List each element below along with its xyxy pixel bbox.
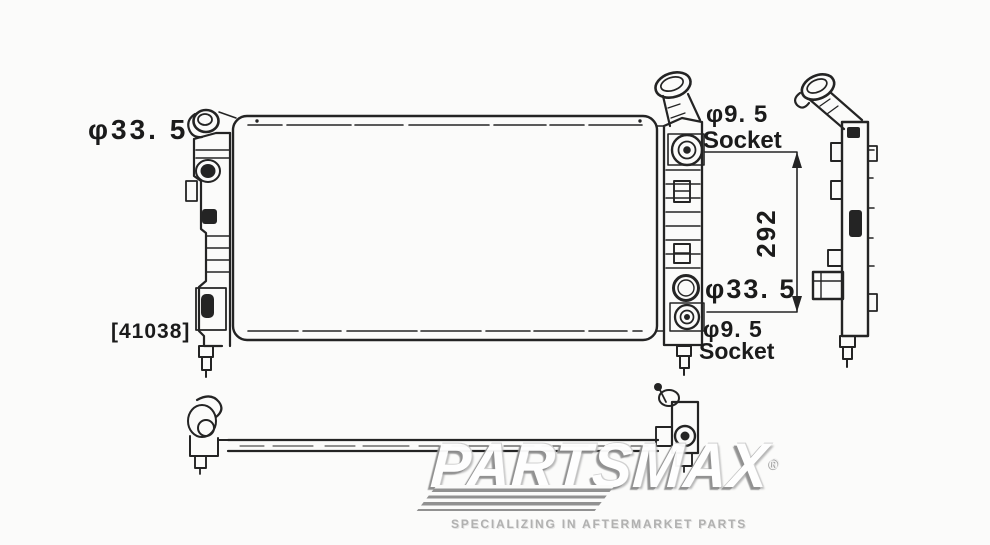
lower-socket-fitting bbox=[670, 303, 704, 331]
radiator-core-front-view bbox=[219, 112, 657, 340]
left-drain-plug bbox=[199, 346, 213, 377]
side-filler-cap bbox=[798, 69, 839, 104]
radiator-bottom-view bbox=[188, 383, 698, 474]
right-drain-plug bbox=[677, 346, 691, 375]
radiator-line-drawing: φ33. 5 [41038] φ9. 5 Socket 292 φ33. 5 φ… bbox=[0, 0, 990, 540]
label-outlet-diameter: φ33. 5 bbox=[705, 274, 796, 304]
right-filler-neck bbox=[652, 68, 700, 126]
bottom-left-fitting bbox=[188, 396, 228, 474]
side-outlet-fitting bbox=[813, 272, 843, 299]
label-part-code: [41038] bbox=[111, 320, 190, 343]
bottom-right-fitting bbox=[654, 383, 698, 472]
parts-diagram-canvas: φ33. 5 [41038] φ9. 5 Socket 292 φ33. 5 φ… bbox=[0, 0, 990, 540]
label-inlet-diameter: φ33. 5 bbox=[88, 114, 188, 145]
side-drain-plug bbox=[840, 336, 855, 367]
label-tank-span: 292 bbox=[751, 208, 781, 257]
right-tank bbox=[652, 68, 704, 375]
arrow-up-icon bbox=[792, 152, 802, 168]
left-tank bbox=[186, 110, 230, 377]
label-lower-socket-text: Socket bbox=[699, 338, 775, 364]
radiator-side-view bbox=[795, 69, 877, 367]
label-upper-socket-text: Socket bbox=[703, 127, 782, 154]
label-upper-socket-size: φ9. 5 bbox=[706, 101, 768, 128]
outlet-pipe bbox=[674, 276, 699, 301]
upper-socket-fitting bbox=[668, 134, 704, 165]
